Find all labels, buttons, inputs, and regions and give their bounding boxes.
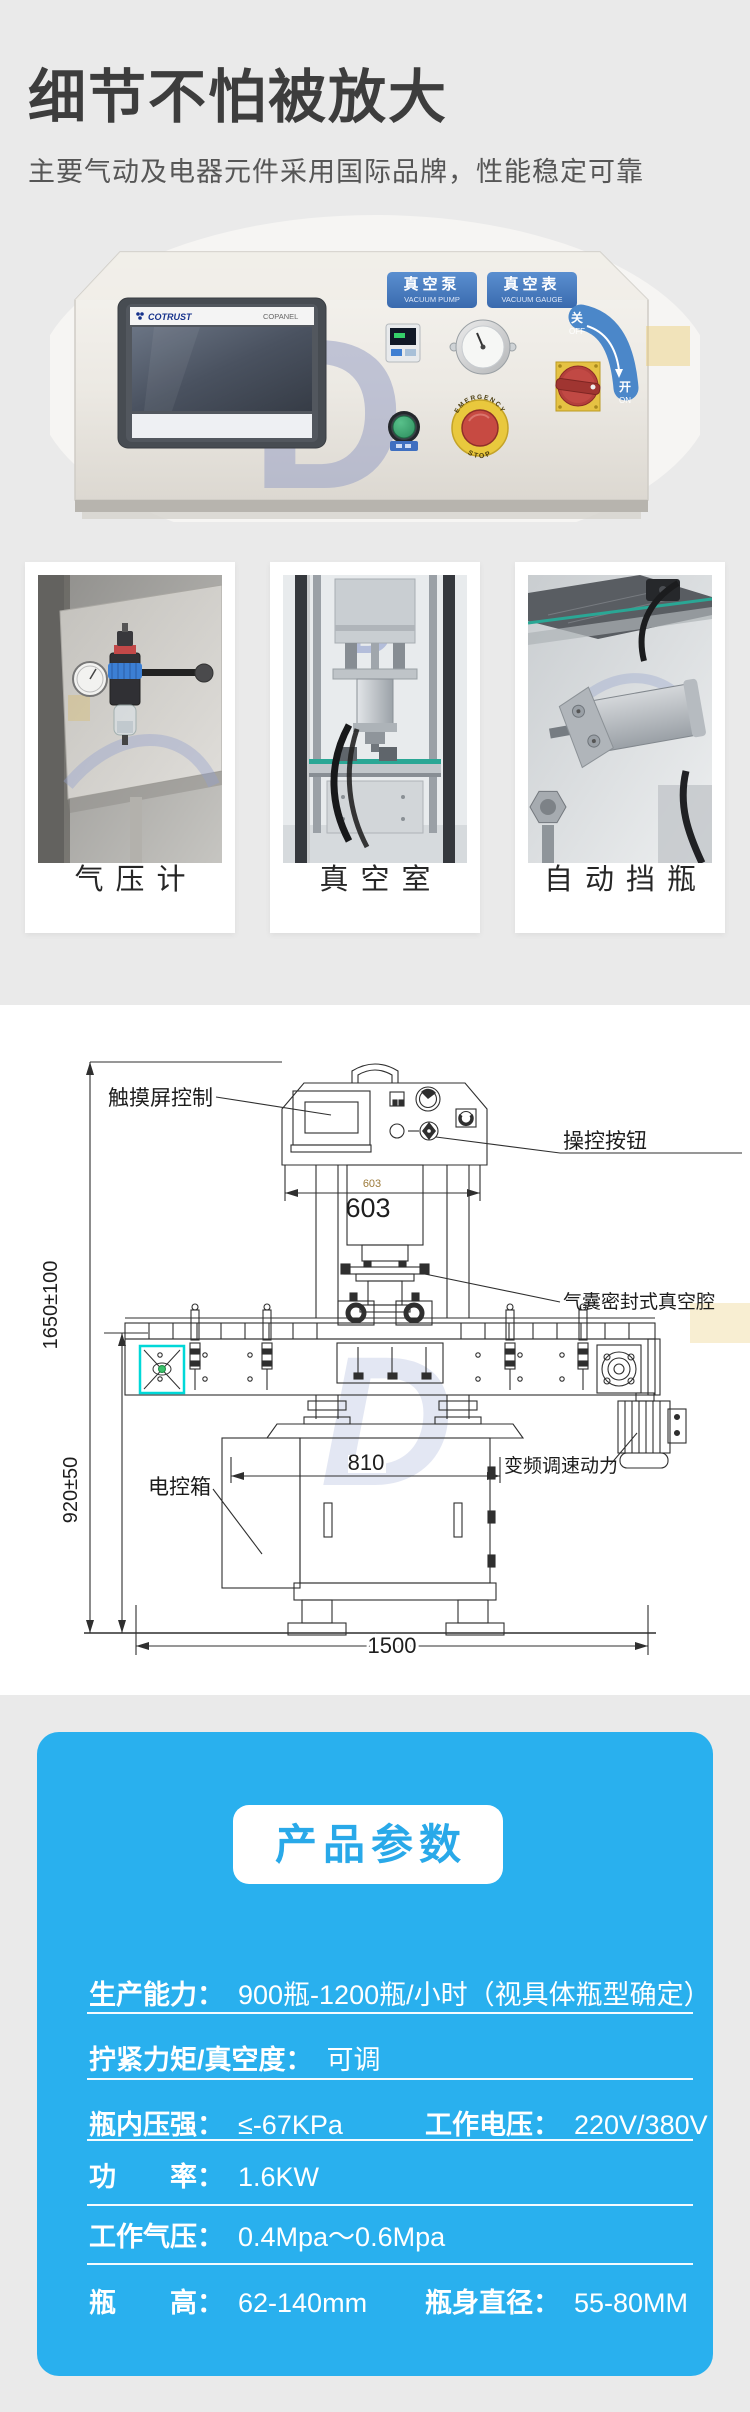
spec-value: 0.4Mpa～0.6Mpa: [238, 2222, 445, 2252]
spec-row-air-pressure: 工作气压：0.4Mpa～0.6Mpa: [37, 2215, 713, 2249]
spec-row-power: 功 率：1.6KW: [37, 2155, 713, 2189]
spec-separator: [87, 2204, 693, 2206]
label-electric-box: 电控箱: [148, 1476, 211, 1499]
vacuum-pump-badge-cn: 真空泵: [403, 275, 460, 293]
page-title: 细节不怕被放大: [28, 50, 448, 134]
label-control-buttons: 操控按钮: [563, 1130, 647, 1153]
start-button: [388, 411, 420, 451]
diagram-watermark: D: [320, 1319, 454, 1525]
feature-card-bottle-stop: 自动挡瓶: [515, 562, 725, 933]
vacuum-pump-badge-en: VACUUM PUMP: [404, 295, 460, 304]
spec-label: 功 率：: [89, 2162, 224, 2192]
hmi-model-text: COPANEL: [263, 312, 298, 321]
dim-1650: 1650±100: [40, 1261, 62, 1350]
vacuum-gauge-badge: 真空表 VACUUM GAUGE: [487, 272, 577, 308]
card-caption: 真空室: [270, 858, 480, 902]
vacuum-gauge-badge-cn: 真空表: [503, 275, 560, 293]
spec-label: 瓶内压强：: [89, 2110, 224, 2140]
spec-value: 62-140mm: [238, 2288, 367, 2318]
label-vacuum-chamber: 气囊密封式真空腔: [563, 1291, 715, 1313]
hmi-brand-text: COTRUST: [148, 312, 193, 322]
switch-on-cn: 开: [619, 380, 631, 394]
spec-label: 拧紧力矩/真空度：: [89, 2045, 313, 2075]
spec-separator: [87, 2263, 693, 2265]
spec-label: 瓶身直径：: [425, 2288, 560, 2318]
dim-810: 810: [348, 1450, 385, 1475]
rotary-power-switch: [555, 362, 600, 411]
technical-diagram: D: [0, 1005, 750, 1695]
vacuum-chamber-photo: D: [283, 575, 467, 863]
card-caption: 自动挡瓶: [515, 858, 725, 902]
card-caption: 气压计: [25, 858, 235, 902]
vacuum-pump-badge: 真空泵 VACUUM PUMP: [387, 272, 477, 308]
dim-920: 920±50: [60, 1457, 82, 1524]
feature-card-pressure-gauge: 气压计: [25, 562, 235, 933]
pressure-gauge-photo: [38, 575, 222, 863]
spec-value: 220V/380V: [574, 2110, 708, 2140]
params-title: 产品参数: [233, 1805, 503, 1884]
spec-label: 工作气压：: [89, 2222, 224, 2252]
dim-603: 603: [345, 1193, 390, 1223]
spec-label: 生产能力：: [89, 1980, 224, 2010]
spec-row-torque: 拧紧力矩/真空度：可调: [37, 2038, 713, 2072]
vacuum-gauge-badge-en: VACUUM GAUGE: [501, 295, 562, 304]
spec-row-bottle-size: 瓶 高：62-140mm 瓶身直径：55-80MM: [37, 2281, 713, 2315]
page-subtitle: 主要气动及电器元件采用国际品牌，性能稳定可靠: [28, 150, 644, 189]
control-panel-photo: D COTRUST COPANEL 真空泵 VACUUM PUMP 真空表 VA…: [50, 195, 700, 522]
spec-value: 55-80MM: [574, 2288, 688, 2318]
spec-row-pressure-voltage: 瓶内压强：≤-67KPa 工作电压：220V/380V: [37, 2103, 713, 2137]
switch-on-en: ON: [619, 396, 631, 405]
label-vfd-motor: 变频调速动力: [504, 1455, 618, 1477]
spec-separator: [87, 2012, 693, 2014]
label-touchscreen: 触摸屏控制: [108, 1087, 213, 1110]
switch-off-en: OFF: [569, 327, 585, 336]
digital-vacuum-controller: [386, 324, 420, 362]
dim-1500: 1500: [368, 1633, 417, 1658]
spec-label: 工作电压：: [425, 2110, 560, 2140]
spec-value: ≤-67KPa: [238, 2110, 343, 2140]
dim-603-small: 603: [363, 1178, 381, 1190]
spec-separator: [87, 2139, 693, 2141]
watermark-yellow-mark: [646, 326, 690, 366]
spec-separator: [87, 2078, 693, 2080]
spec-value: 可调: [327, 2045, 381, 2075]
product-params-panel: 产品参数 生产能力：900瓶-1200瓶/小时（视具体瓶型确定） 拧紧力矩/真空…: [37, 1732, 713, 2376]
spec-label: 瓶 高：: [89, 2288, 224, 2318]
hmi-touchscreen: COTRUST COPANEL: [118, 298, 326, 448]
spec-value: 900瓶-1200瓶/小时（视具体瓶型确定）: [238, 1980, 711, 2010]
feature-card-vacuum-chamber: D 真空室: [270, 562, 480, 933]
bottle-stop-photo: [528, 575, 712, 863]
spec-row-capacity: 生产能力：900瓶-1200瓶/小时（视具体瓶型确定）: [37, 1973, 713, 2007]
spec-value: 1.6KW: [238, 2162, 319, 2192]
switch-off-cn: 关: [571, 310, 583, 325]
